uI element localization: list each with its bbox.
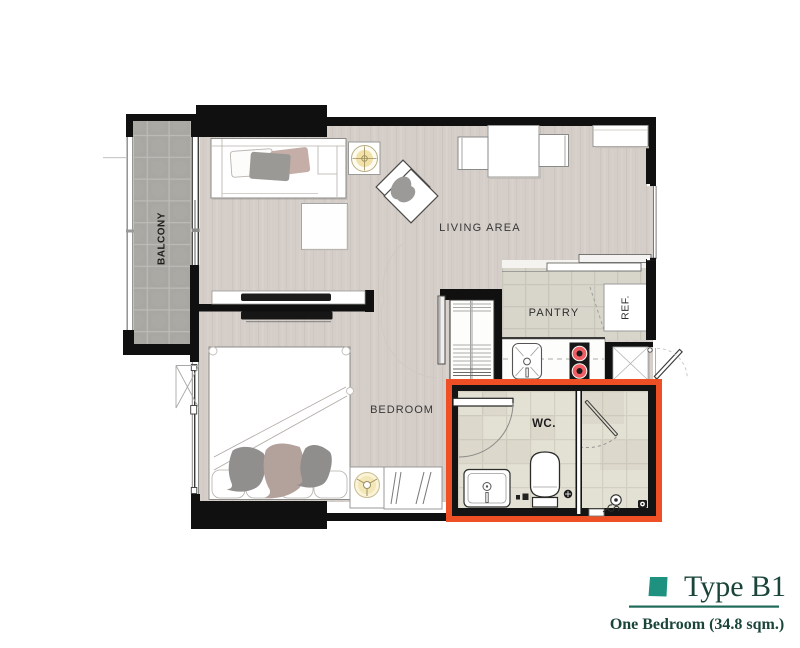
svg-text:LIVING AREA: LIVING AREA: [439, 222, 521, 234]
svg-text:PANTRY: PANTRY: [529, 307, 580, 319]
svg-text:BEDROOM: BEDROOM: [370, 404, 434, 416]
svg-text:REF.: REF.: [619, 295, 631, 320]
svg-text:Type B1: Type B1: [684, 570, 786, 603]
svg-text:WC.: WC.: [532, 418, 556, 430]
svg-text:One Bedroom (34.8 sqm.): One Bedroom (34.8 sqm.): [610, 616, 784, 633]
svg-text:BALCONY: BALCONY: [157, 212, 168, 265]
